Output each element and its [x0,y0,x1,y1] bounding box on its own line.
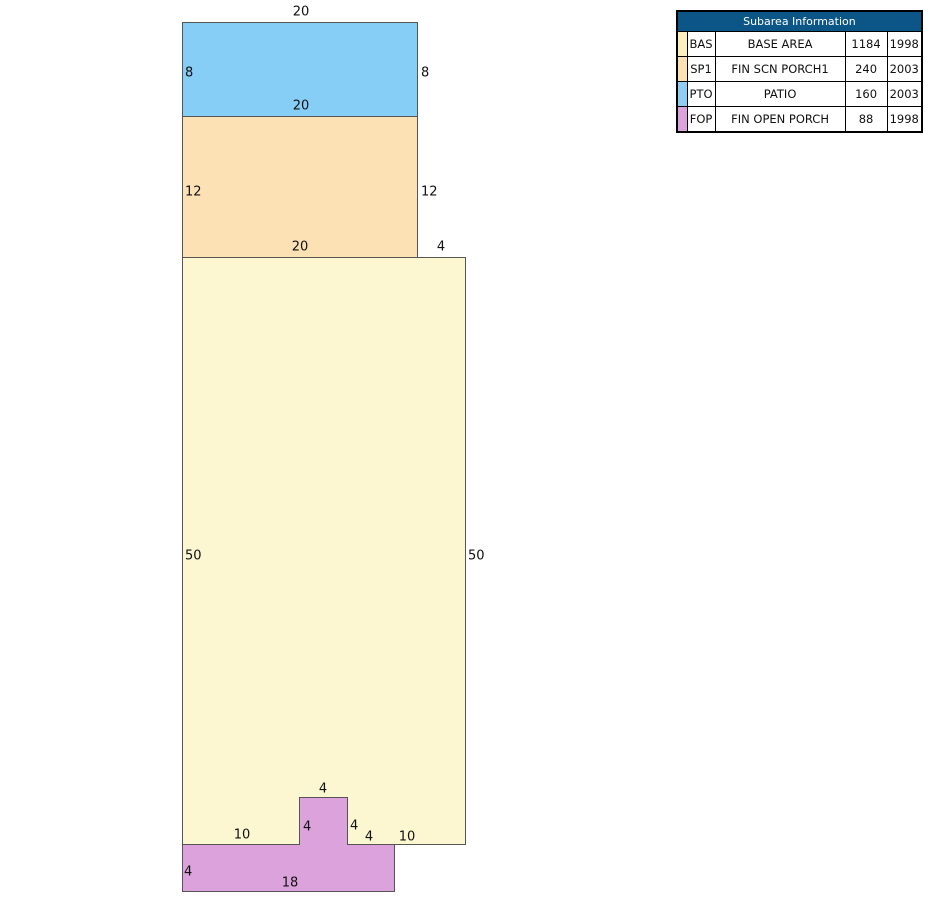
table-header-row: Subarea Information [677,11,922,32]
subarea-code: PTO [687,82,715,107]
table-title: Subarea Information [677,11,922,32]
subarea-year: 1998 [887,32,922,57]
subarea-information-table: Subarea Information BAS BASE AREA 1184 1… [676,10,923,133]
subarea-area: 240 [845,57,887,82]
sketch-area-sp1-fin-scn-porch [183,117,418,258]
dim-sp1-left: 12 [185,186,202,199]
sketch-area-bas-base-area [183,258,466,845]
subarea-description: BASE AREA [715,32,845,57]
dim-fop-bump-top: 4 [319,783,327,796]
dim-bas-bottom-mid: 4 [365,831,373,844]
color-swatch-sp1 [677,57,687,82]
table-row-fop: FOP FIN OPEN PORCH 88 1998 [677,107,922,133]
subarea-area: 160 [845,82,887,107]
table-row-sp1: SP1 FIN SCN PORCH1 240 2003 [677,57,922,82]
subarea-area: 1184 [845,32,887,57]
dim-bas-right: 50 [468,550,485,563]
dim-pto-right: 8 [421,67,429,80]
color-swatch-bas [677,32,687,57]
dim-bas-top-right: 4 [437,241,445,254]
dim-sp1-right: 12 [421,186,438,199]
table-row-bas: BAS BASE AREA 1184 1998 [677,32,922,57]
table-row-pto: PTO PATIO 160 2003 [677,82,922,107]
dim-sp1-bottom: 20 [292,241,309,254]
color-swatch-fop [677,107,687,133]
subarea-description: FIN SCN PORCH1 [715,57,845,82]
subarea-area: 88 [845,107,887,133]
dim-fop-bump-right: 4 [350,820,358,833]
dim-bas-bottom-left: 10 [234,829,251,842]
dim-fop-bump-left: 4 [303,821,311,834]
subarea-description: PATIO [715,82,845,107]
dim-pto-left: 8 [185,67,193,80]
dim-pto-top: 20 [293,6,310,19]
subarea-year: 1998 [887,107,922,133]
subarea-description: FIN OPEN PORCH [715,107,845,133]
property-sketch-page: 20 8 8 20 12 12 20 4 50 50 10 4 4 4 4 10… [0,0,925,903]
building-sketch [0,0,925,903]
subarea-code: BAS [687,32,715,57]
subarea-code: SP1 [687,57,715,82]
dim-bas-bottom-right: 10 [399,831,416,844]
color-swatch-pto [677,82,687,107]
dim-fop-bottom: 18 [282,877,299,890]
subarea-year: 2003 [887,82,922,107]
dim-pto-bottom: 20 [293,100,310,113]
subarea-year: 2003 [887,57,922,82]
dim-bas-left: 50 [185,550,202,563]
dim-fop-left: 4 [184,866,192,879]
subarea-code: FOP [687,107,715,133]
